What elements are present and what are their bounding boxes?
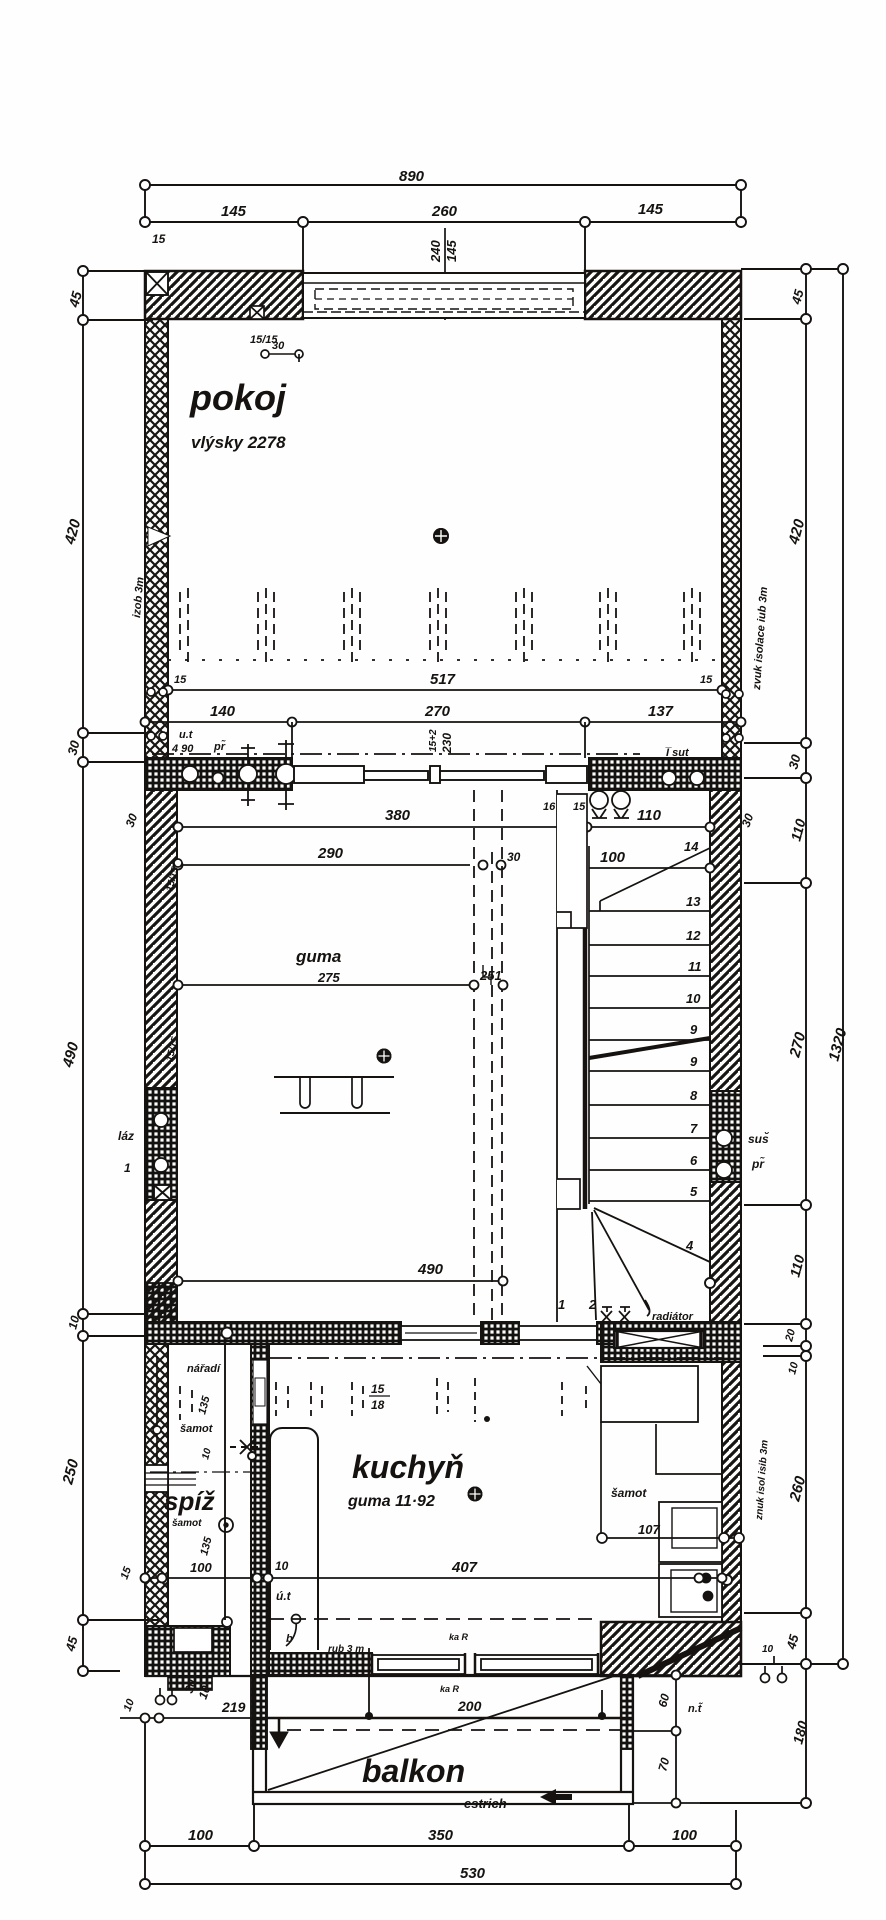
svg-text:18: 18: [371, 1398, 385, 1412]
svg-text:6: 6: [690, 1153, 698, 1168]
svg-text:100: 100: [600, 849, 626, 866]
svg-text:1: 1: [558, 1297, 565, 1312]
svg-text:270: 270: [424, 703, 451, 720]
svg-text:100: 100: [188, 1827, 214, 1844]
svg-text:15: 15: [152, 232, 166, 246]
svg-text:145: 145: [638, 201, 664, 218]
svg-text:šamot: šamot: [180, 1423, 214, 1435]
svg-text:12: 12: [686, 928, 701, 943]
svg-text:110: 110: [637, 807, 662, 824]
svg-text:guma: guma: [295, 947, 341, 966]
svg-text:4 90: 4 90: [171, 743, 194, 755]
svg-text:8: 8: [690, 1088, 698, 1103]
svg-text:spíž: spíž: [164, 1486, 216, 1516]
svg-text:guma 11·92: guma 11·92: [347, 1493, 435, 1510]
svg-text:30: 30: [507, 850, 521, 864]
svg-text:kuchyň: kuchyň: [352, 1449, 464, 1485]
svg-text:890: 890: [399, 168, 425, 185]
svg-text:100: 100: [190, 1560, 212, 1575]
svg-text:407: 407: [451, 1559, 478, 1576]
svg-text:1: 1: [124, 1161, 131, 1175]
svg-text:15: 15: [573, 801, 586, 813]
svg-text:ka R: ka R: [449, 1632, 469, 1642]
svg-text:láz: láz: [118, 1129, 134, 1143]
svg-text:2: 2: [588, 1297, 597, 1312]
svg-text:4: 4: [685, 1238, 694, 1253]
svg-text:9: 9: [690, 1022, 698, 1037]
svg-text:490: 490: [417, 1261, 444, 1278]
svg-text:I̅ sut: I̅ sut: [665, 747, 690, 759]
svg-text:5: 5: [690, 1184, 698, 1199]
svg-text:240: 240: [428, 240, 443, 263]
svg-text:15: 15: [371, 1382, 385, 1396]
svg-text:530: 530: [460, 1865, 486, 1882]
svg-text:15: 15: [700, 674, 713, 686]
svg-text:ú.t: ú.t: [276, 1589, 292, 1603]
svg-text:16: 16: [543, 801, 556, 813]
svg-text:275: 275: [317, 970, 340, 985]
svg-text:balkon: balkon: [362, 1753, 465, 1789]
svg-text:230: 230: [440, 733, 454, 754]
svg-text:nářadí: nářadí: [187, 1363, 222, 1375]
svg-text:rub 3 m: rub 3 m: [328, 1644, 364, 1655]
svg-text:n.t̃: n.t̃: [688, 1702, 703, 1715]
svg-text:pokoj: pokoj: [189, 377, 287, 418]
svg-text:šamot: šamot: [172, 1518, 202, 1529]
svg-text:13: 13: [686, 894, 701, 909]
svg-text:380: 380: [385, 807, 411, 824]
svg-text:estrich: estrich: [464, 1796, 507, 1811]
svg-text:u.t: u.t: [179, 729, 194, 741]
svg-text:pr̃: pr̃: [213, 740, 226, 753]
svg-text:200: 200: [457, 1698, 482, 1714]
svg-text:10: 10: [762, 1644, 774, 1655]
svg-text:10: 10: [686, 991, 701, 1006]
svg-text:7: 7: [690, 1121, 698, 1136]
svg-text:219: 219: [221, 1699, 246, 1715]
svg-text:251: 251: [479, 968, 502, 983]
svg-text:260: 260: [431, 203, 458, 220]
svg-text:100: 100: [672, 1827, 698, 1844]
svg-text:šamot: šamot: [611, 1486, 647, 1500]
svg-text:pr̃: pr̃: [751, 1156, 765, 1171]
svg-text:30: 30: [272, 340, 285, 352]
svg-text:15: 15: [174, 674, 187, 686]
svg-text:14: 14: [684, 839, 699, 854]
svg-text:10: 10: [275, 1559, 289, 1573]
svg-text:vlýsky 2278: vlýsky 2278: [191, 433, 286, 452]
svg-text:137: 137: [648, 703, 674, 720]
svg-text:sus̆: sus̆: [748, 1131, 769, 1146]
svg-text:140: 140: [210, 703, 236, 720]
svg-text:350: 350: [428, 1827, 454, 1844]
svg-text:15+2: 15+2: [428, 729, 439, 752]
svg-text:145: 145: [444, 240, 459, 262]
svg-text:ka R: ka R: [440, 1684, 460, 1694]
svg-text:290: 290: [317, 845, 344, 862]
svg-text:517: 517: [430, 671, 456, 688]
svg-text:11: 11: [688, 959, 702, 974]
svg-text:9: 9: [690, 1054, 698, 1069]
svg-text:107: 107: [638, 1522, 660, 1537]
svg-text:145: 145: [221, 203, 247, 220]
